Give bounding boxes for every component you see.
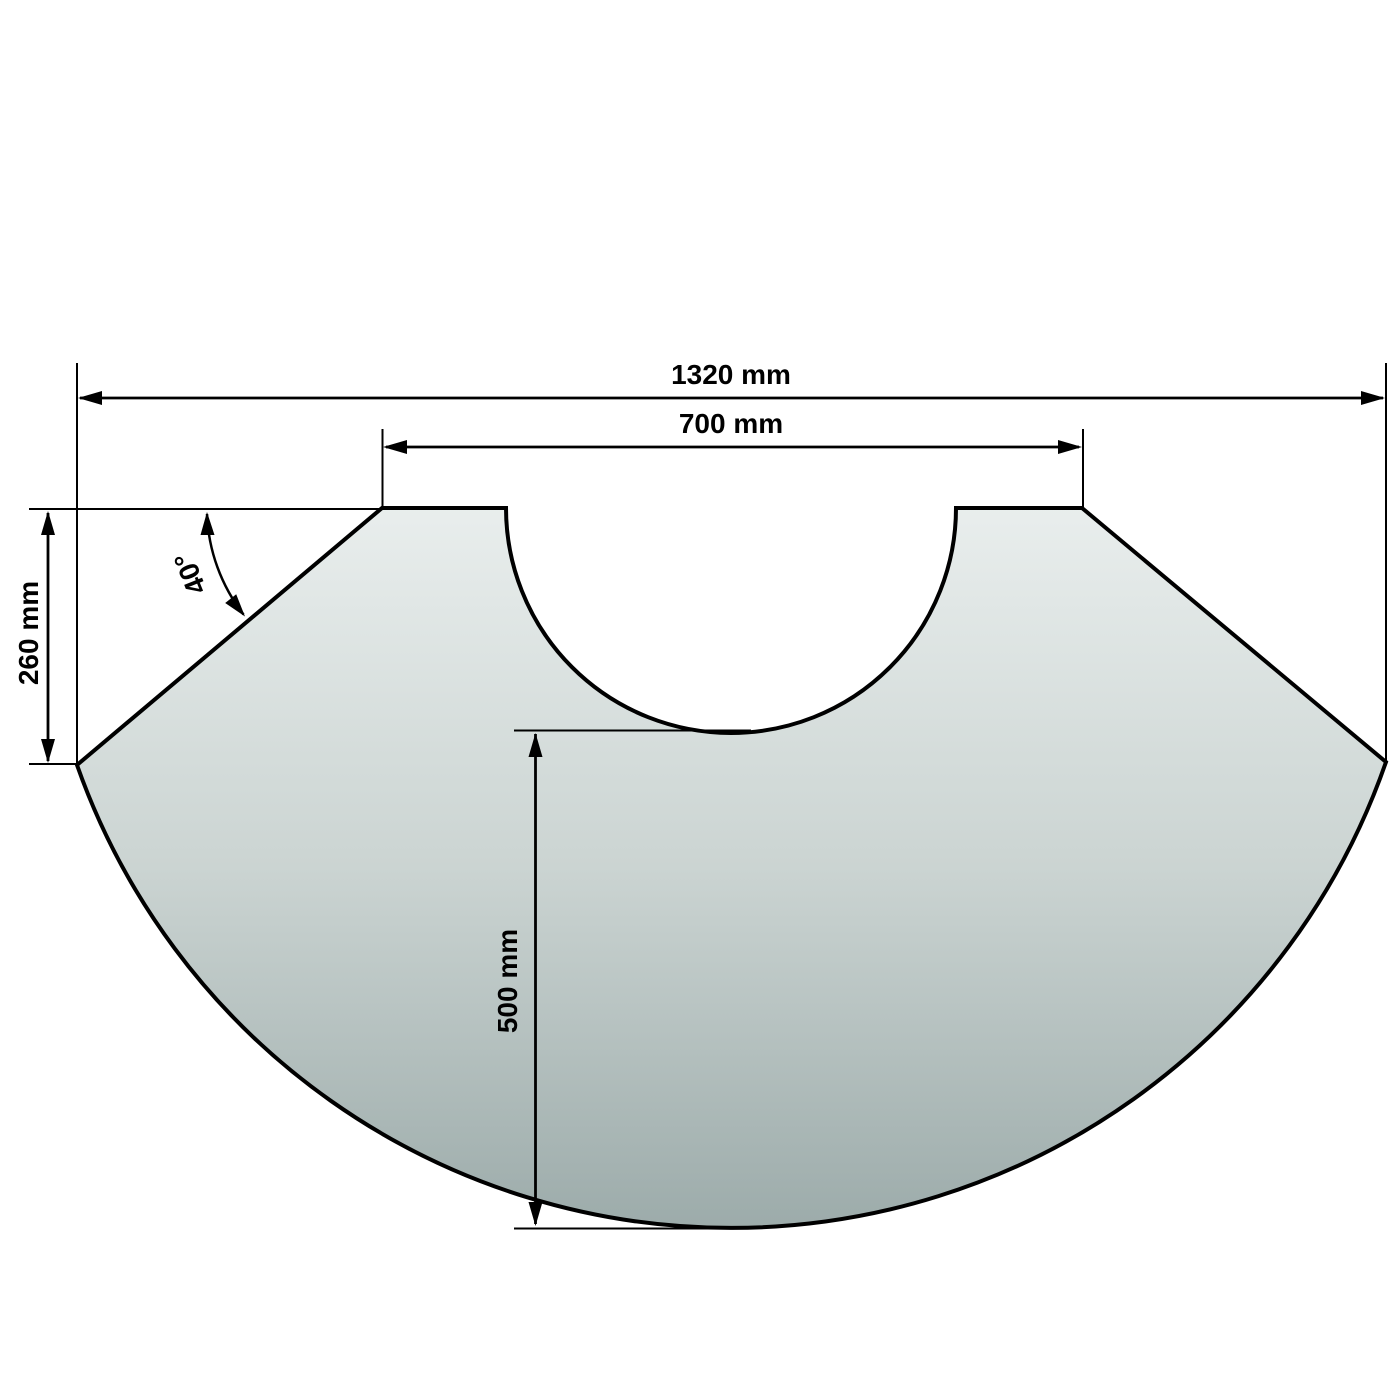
label-left-edge-height: 260 mm — [13, 581, 44, 685]
dim-1320-arrow-right — [1361, 391, 1385, 405]
panel-shape — [77, 508, 1386, 1228]
label-overall-width: 1320 mm — [671, 359, 791, 390]
label-corner-angle: 40° — [168, 548, 213, 599]
label-bottom-depth: 500 mm — [492, 929, 523, 1033]
dim-260-arrow-bottom — [41, 739, 55, 763]
dim-500-arrow-bottom — [529, 1202, 543, 1226]
angle-arc-arrow-bottom — [225, 594, 245, 616]
drawing-page: 1320 mm 700 mm 260 mm 500 mm 40° — [0, 0, 1400, 1400]
angle-arc-arrow-top — [201, 512, 215, 535]
technical-drawing-canvas: 1320 mm 700 mm 260 mm 500 mm 40° — [0, 0, 1400, 1400]
dim-700-arrow-left — [383, 440, 407, 454]
dim-1320-arrow-left — [78, 391, 102, 405]
label-opening-width: 700 mm — [679, 408, 783, 439]
dim-260-arrow-top — [41, 511, 55, 535]
dim-700-arrow-right — [1058, 440, 1082, 454]
